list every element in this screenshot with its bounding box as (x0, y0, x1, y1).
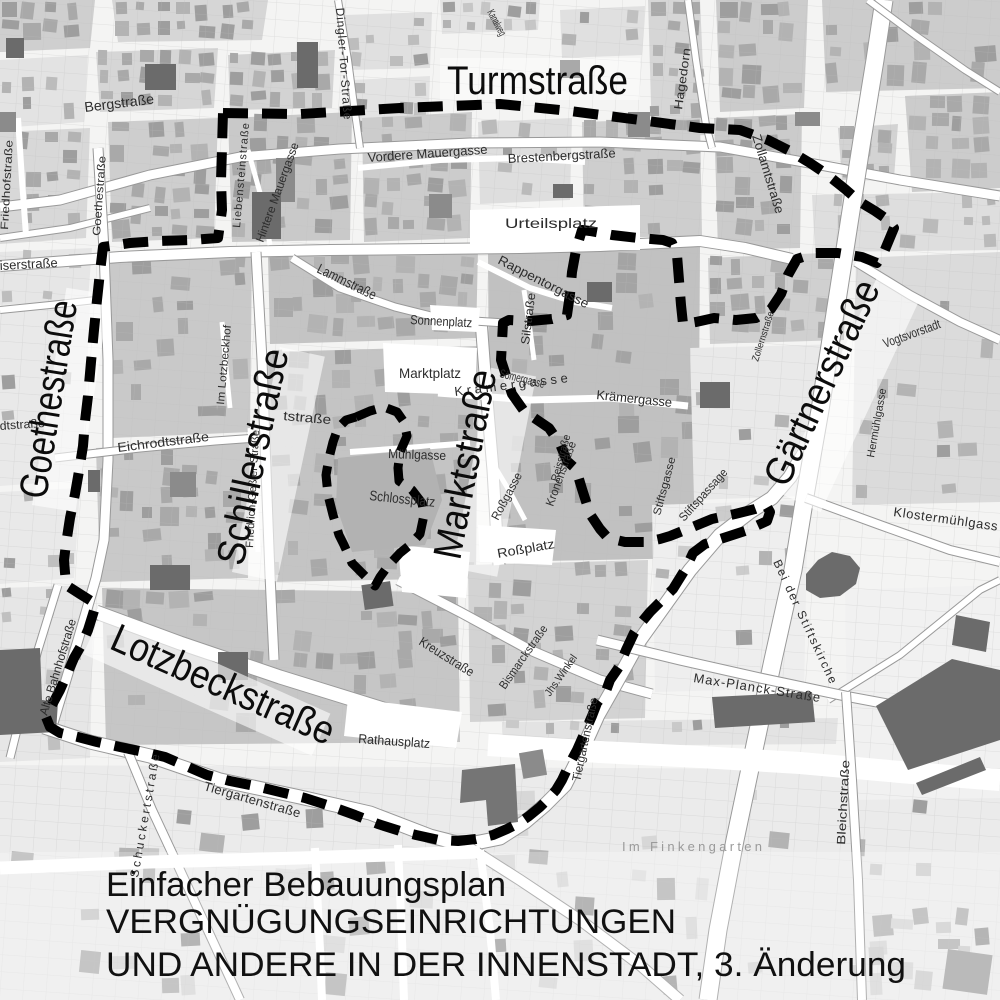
svg-text:UND ANDERE IN DER INNENSTADT,: UND ANDERE IN DER INNENSTADT, 3. Änderun… (106, 946, 906, 984)
svg-text:iserstraße: iserstraße (0, 255, 58, 273)
svg-text:VERGNÜGUNGSEINRICHTUNGEN: VERGNÜGUNGSEINRICHTUNGEN (106, 903, 676, 941)
svg-text:Einfacher Bebauungsplan: Einfacher Bebauungsplan (106, 866, 506, 904)
svg-text:Urteilsplatz: Urteilsplatz (505, 215, 597, 231)
svg-text:Turmstraße: Turmstraße (447, 59, 628, 103)
svg-text:Marktplatz: Marktplatz (399, 365, 461, 381)
svg-text:Mühlgasse: Mühlgasse (388, 446, 446, 463)
